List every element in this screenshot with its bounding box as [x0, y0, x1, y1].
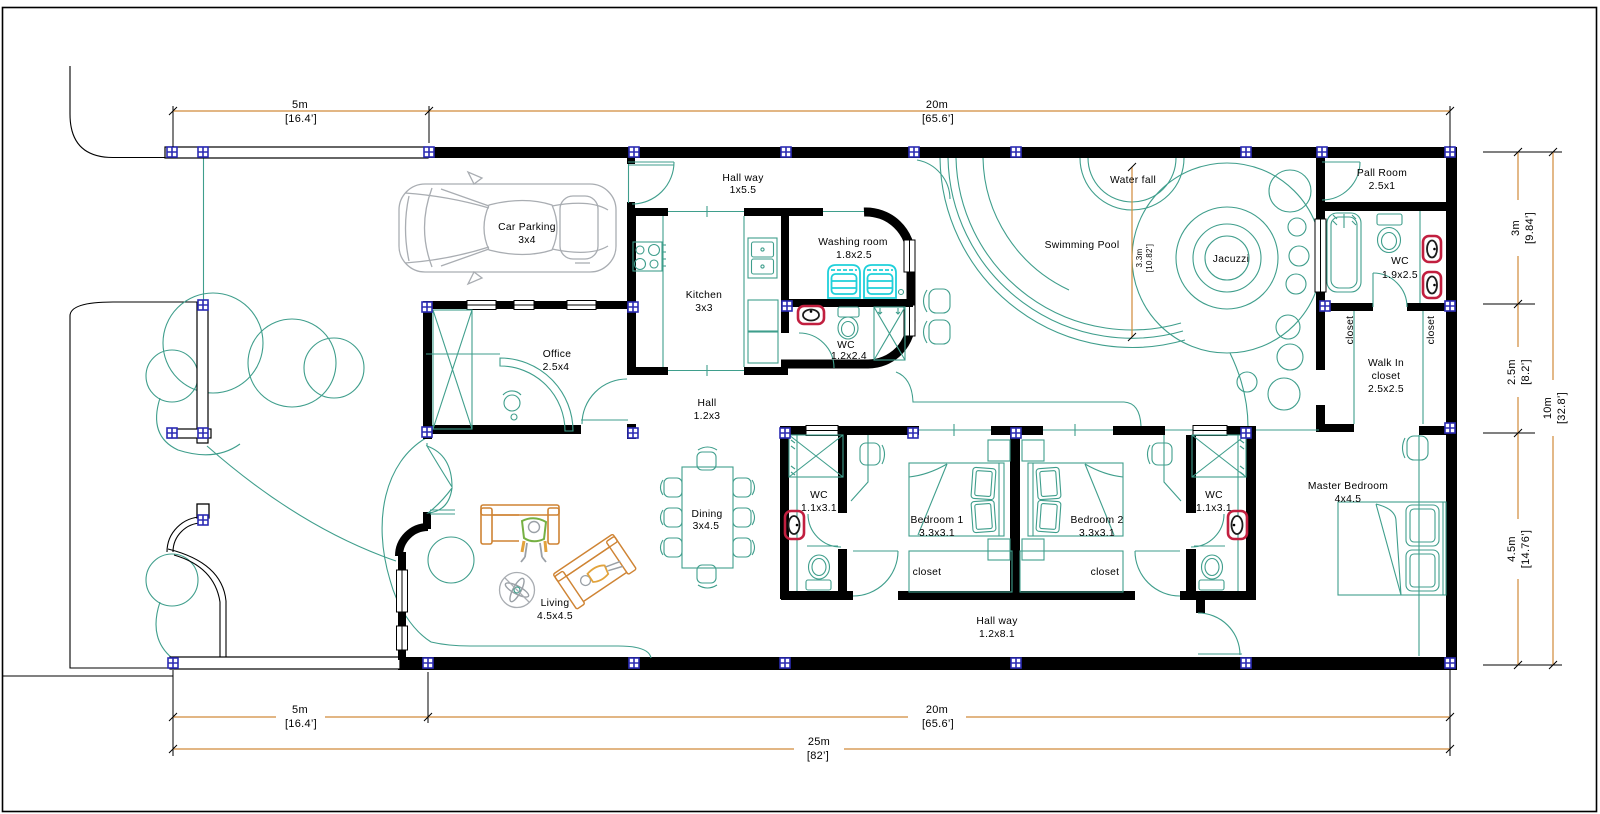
svg-text:[16.4’]: [16.4’]: [285, 113, 317, 125]
svg-text:1.1x3.1: 1.1x3.1: [1196, 503, 1232, 514]
svg-text:2.5x1: 2.5x1: [1369, 181, 1396, 192]
svg-text:3m: 3m: [1510, 220, 1522, 236]
svg-text:4.5x4.5: 4.5x4.5: [537, 611, 573, 622]
svg-text:WC: WC: [837, 340, 855, 351]
svg-text:[10.82’]: [10.82’]: [1145, 244, 1154, 273]
svg-text:Bedroom 1: Bedroom 1: [910, 515, 963, 526]
svg-text:20m: 20m: [926, 99, 948, 111]
svg-text:Hall way: Hall way: [722, 173, 764, 184]
svg-text:Car Parking: Car Parking: [498, 222, 556, 233]
svg-text:3x3: 3x3: [695, 303, 713, 314]
svg-text:2.5m: 2.5m: [1506, 359, 1518, 385]
svg-text:closet: closet: [1091, 567, 1120, 578]
svg-text:[8.2’]: [8.2’]: [1520, 359, 1532, 385]
svg-text:1.2x8.1: 1.2x8.1: [979, 629, 1015, 640]
svg-text:3.3m: 3.3m: [1135, 248, 1144, 267]
svg-text:[9.84’]: [9.84’]: [1524, 212, 1536, 244]
svg-text:[65.6’]: [65.6’]: [922, 113, 954, 125]
svg-text:[14.76’]: [14.76’]: [1520, 530, 1532, 568]
svg-text:closet: closet: [1426, 316, 1437, 345]
svg-text:Walk In: Walk In: [1368, 358, 1404, 369]
svg-text:5m: 5m: [292, 704, 308, 716]
svg-text:WC: WC: [1391, 256, 1409, 267]
svg-text:WC: WC: [810, 490, 828, 501]
svg-text:[65.6’]: [65.6’]: [922, 718, 954, 730]
svg-text:1.2x3: 1.2x3: [694, 411, 721, 422]
svg-text:Dining: Dining: [692, 509, 723, 520]
svg-text:20m: 20m: [926, 704, 948, 716]
svg-text:Kitchen: Kitchen: [686, 290, 722, 301]
svg-text:25m: 25m: [808, 736, 830, 748]
svg-text:Jacuzzi: Jacuzzi: [1213, 254, 1249, 265]
svg-text:closet: closet: [1372, 371, 1401, 382]
svg-text:4x4.5: 4x4.5: [1335, 494, 1362, 505]
svg-text:1.2x2.4: 1.2x2.4: [831, 351, 867, 362]
svg-text:10m: 10m: [1542, 397, 1554, 419]
svg-text:Hall: Hall: [698, 398, 717, 409]
svg-text:Master Bedroom: Master Bedroom: [1308, 481, 1388, 492]
svg-text:1.8x2.5: 1.8x2.5: [836, 250, 872, 261]
svg-text:closet: closet: [1345, 316, 1356, 345]
svg-text:Swimming Pool: Swimming Pool: [1045, 240, 1120, 251]
svg-text:[82’]: [82’]: [807, 750, 829, 762]
svg-text:[32.8’]: [32.8’]: [1556, 392, 1568, 424]
svg-text:[16.4’]: [16.4’]: [285, 718, 317, 730]
svg-text:WC: WC: [1205, 490, 1223, 501]
svg-text:1x5.5: 1x5.5: [730, 185, 757, 196]
svg-text:1.1x3.1: 1.1x3.1: [801, 503, 837, 514]
svg-text:Office: Office: [543, 349, 572, 360]
svg-text:Washing room: Washing room: [818, 237, 888, 248]
svg-text:Bedroom 2: Bedroom 2: [1070, 515, 1123, 526]
svg-text:Water fall: Water fall: [1110, 175, 1156, 186]
svg-text:4.5m: 4.5m: [1506, 536, 1518, 562]
svg-text:3x4: 3x4: [518, 235, 536, 246]
svg-text:3.3x3.1: 3.3x3.1: [1079, 528, 1115, 539]
svg-text:closet: closet: [913, 567, 942, 578]
svg-text:3.3x3.1: 3.3x3.1: [919, 528, 955, 539]
svg-text:1.9x2.5: 1.9x2.5: [1382, 270, 1418, 281]
svg-text:Pall Room: Pall Room: [1357, 168, 1407, 179]
svg-text:Living: Living: [541, 598, 570, 609]
svg-text:2.5x2.5: 2.5x2.5: [1368, 384, 1404, 395]
svg-text:2.5x4: 2.5x4: [543, 362, 570, 373]
svg-text:5m: 5m: [292, 99, 308, 111]
svg-text:Hall way: Hall way: [976, 616, 1018, 627]
svg-text:3x4.5: 3x4.5: [693, 521, 720, 532]
